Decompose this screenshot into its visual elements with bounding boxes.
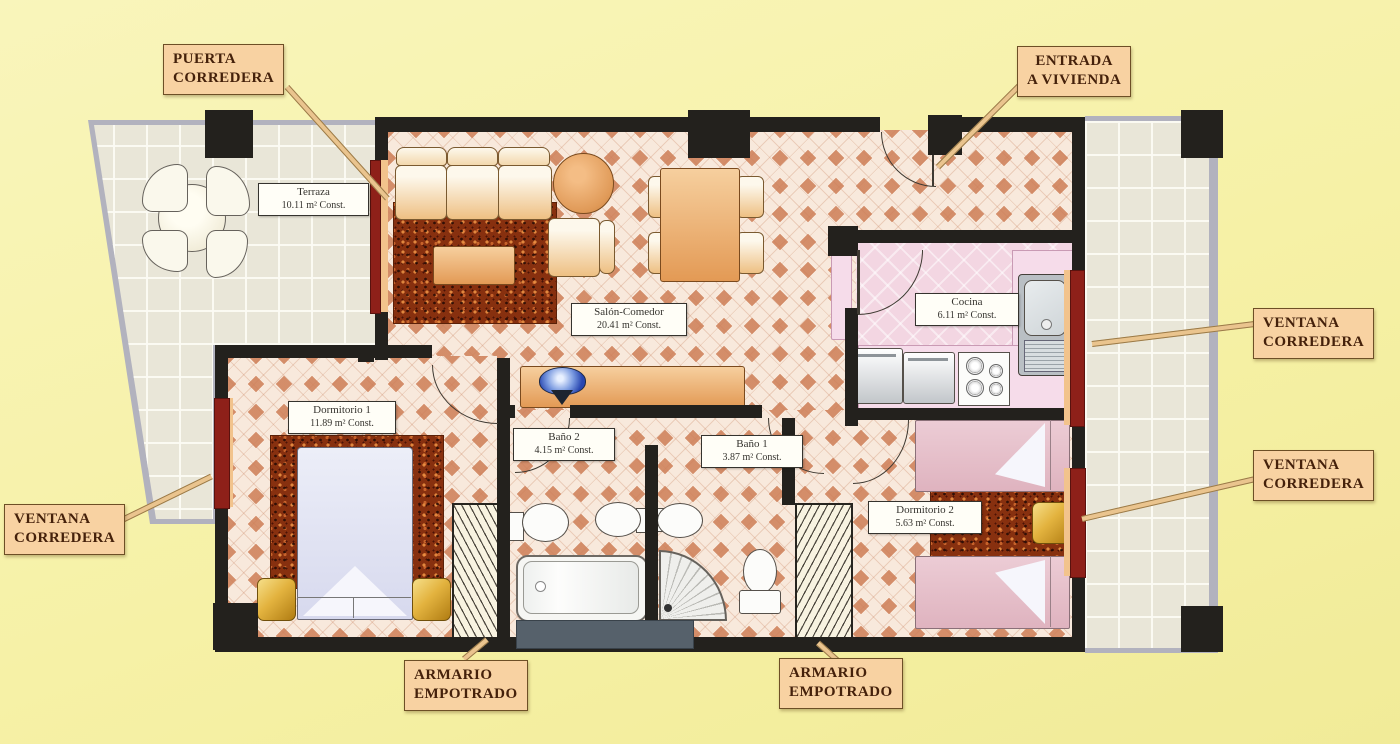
room-name: Cocina: [922, 296, 1012, 310]
stove-burner: [966, 357, 984, 375]
callout-ventana-corredera-left: VENTANA CORREDERA: [4, 504, 125, 555]
room-area: 3.87 m² Const.: [708, 452, 796, 465]
toilet-bowl: [522, 503, 569, 542]
wall-segment: [215, 345, 228, 398]
floor-plan: Terraza 10.11 m² Const. Salón-Comedor 20…: [0, 0, 1400, 744]
callout-ventana-corredera-right-bottom: VENTANA CORREDERA: [1253, 450, 1374, 501]
wall-segment: [845, 408, 1072, 420]
room-label-cocina: Cocina 6.11 m² Const.: [915, 293, 1019, 326]
sofa-seat-cushion: [446, 165, 499, 220]
sliding-window-kitchen: [1070, 270, 1085, 427]
side-table: [553, 153, 614, 214]
callout-ventana-corredera-right-top: VENTANA CORREDERA: [1253, 308, 1374, 359]
bidet: [595, 502, 641, 537]
bed-pillow-line: [1050, 420, 1051, 490]
sliding-window-left: [214, 398, 230, 509]
toilet-tank: [739, 590, 781, 614]
sliding-window-bedroom2: [1070, 468, 1086, 578]
callout-line: ARMARIO: [789, 664, 893, 683]
pillar: [213, 603, 258, 650]
dining-chair: [736, 232, 764, 274]
room-label-terraza: Terraza 10.11 m² Const.: [258, 183, 369, 216]
wall-segment: [375, 117, 388, 162]
bedroom2-bed-bottom: [915, 556, 1070, 629]
built-in-wardrobe-right: [795, 503, 853, 643]
room-name: Dormitorio 2: [875, 504, 975, 518]
callout-entrada-a-vivienda: ENTRADA A VIVIENDA: [1017, 46, 1131, 97]
sofa-back-cushion: [498, 147, 550, 166]
armchair: [548, 218, 600, 277]
dishwasher-lid: [908, 358, 948, 361]
shower-drain: [664, 604, 672, 612]
room-label-dormitorio2: Dormitorio 2 5.63 m² Const.: [868, 501, 982, 534]
callout-line: CORREDERA: [14, 529, 115, 548]
sofa-back-cushion: [396, 147, 447, 166]
room-name: Terraza: [265, 186, 362, 200]
bed-foot-divider: [353, 597, 354, 618]
bath-bench: [516, 620, 694, 649]
bathtub-drain: [535, 581, 546, 592]
washing-machine-lid: [853, 354, 896, 357]
callout-line: ENTRADA: [1027, 52, 1121, 71]
wall-segment: [497, 358, 510, 637]
callout-line: CORREDERA: [173, 69, 274, 88]
callout-line: CORREDERA: [1263, 475, 1364, 494]
room-name: Salón-Comedor: [578, 306, 680, 320]
room-label-bano2: Baño 2 4.15 m² Const.: [513, 428, 615, 461]
wall-segment: [645, 445, 658, 637]
sofa-back-cushion: [447, 147, 498, 166]
wall-segment: [1072, 425, 1085, 468]
wall-segment: [1072, 117, 1085, 270]
room-name: Dormitorio 1: [295, 404, 389, 418]
pillar: [205, 110, 253, 158]
room-label-dormitorio1: Dormitorio 1 11.89 m² Const.: [288, 401, 396, 434]
callout-line: CORREDERA: [1263, 333, 1364, 352]
pillar: [1181, 110, 1223, 158]
callout-armario-empotrado-left: ARMARIO EMPOTRADO: [404, 660, 528, 711]
room-area: 4.15 m² Const.: [520, 445, 608, 458]
toilet-bowl: [743, 549, 777, 594]
callout-line: VENTANA: [1263, 456, 1364, 475]
wall-segment: [215, 345, 432, 358]
callout-line: ARMARIO: [414, 666, 518, 685]
room-name: Baño 2: [520, 431, 608, 445]
sink-drainer: [1024, 340, 1066, 372]
sofa-seat-cushion: [498, 165, 552, 220]
bedroom2-bed-top: [915, 420, 1070, 492]
wall-segment: [375, 117, 880, 132]
room-label-bano1: Baño 1 3.87 m² Const.: [701, 435, 803, 468]
room-area: 5.63 m² Const.: [875, 518, 975, 531]
stove: [958, 352, 1010, 406]
room-area: 10.11 m² Const.: [265, 200, 362, 213]
room-area: 6.11 m² Const.: [922, 310, 1012, 323]
armchair-arm: [599, 220, 615, 274]
callout-line: PUERTA: [173, 50, 274, 69]
bidet: [657, 503, 703, 538]
wall-segment: [845, 230, 1072, 243]
callout-armario-empotrado-right: ARMARIO EMPOTRADO: [779, 658, 903, 709]
nightstand: [412, 578, 451, 621]
sofa-seat-cushion: [395, 165, 447, 220]
callout-line: VENTANA: [1263, 314, 1364, 333]
callout-puerta-corredera: PUERTA CORREDERA: [163, 44, 284, 95]
callout-line: VENTANA: [14, 510, 115, 529]
stove-burner: [989, 382, 1003, 396]
bed-pillow-line: [1050, 556, 1051, 627]
pillar: [1181, 606, 1223, 652]
callout-line: EMPOTRADO: [414, 685, 518, 704]
nightstand: [257, 578, 296, 621]
room-name: Baño 1: [708, 438, 796, 452]
terrace-right-floor: [1085, 121, 1209, 648]
stove-burner: [989, 364, 1003, 378]
callout-line: A VIVIENDA: [1027, 71, 1121, 90]
stove-burner: [966, 379, 984, 397]
pillar: [688, 110, 750, 158]
room-area: 20.41 m² Const.: [578, 320, 680, 333]
sink-drain: [1041, 319, 1052, 330]
wall-segment: [570, 405, 762, 418]
callout-line: EMPOTRADO: [789, 683, 893, 702]
wall-segment: [845, 308, 858, 408]
coffee-table: [433, 246, 515, 285]
dining-chair: [736, 176, 764, 218]
room-area: 11.89 m² Const.: [295, 418, 389, 431]
wall-segment: [358, 346, 374, 362]
kitchen-door-leaf: [857, 250, 860, 314]
room-label-salon: Salón-Comedor 20.41 m² Const.: [571, 303, 687, 336]
wall-segment: [828, 226, 858, 256]
bed-foot-line: [297, 597, 411, 598]
built-in-wardrobe-left: [452, 503, 502, 643]
dining-table: [660, 168, 740, 282]
